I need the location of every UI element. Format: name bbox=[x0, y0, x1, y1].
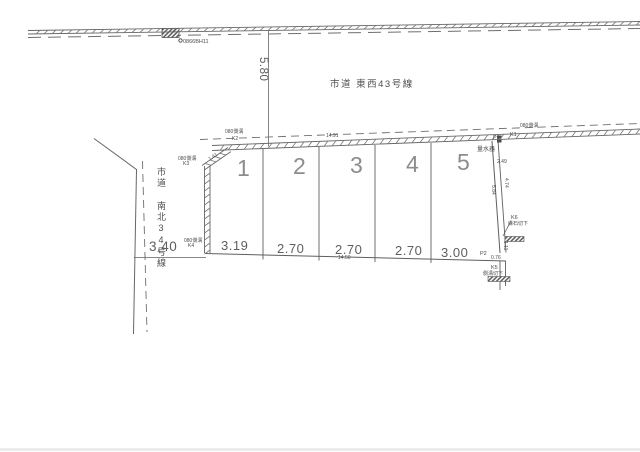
k6-note-label: 縁石切下 bbox=[508, 222, 528, 227]
k4-point-label: K4 bbox=[188, 244, 194, 249]
scan-edge-artifact bbox=[0, 448, 640, 451]
right-dimension-a: 5.84 bbox=[490, 185, 495, 195]
left-road-edge bbox=[94, 139, 137, 335]
parcel-block bbox=[134, 141, 506, 291]
k1-gutter-label: 080側溝 bbox=[520, 124, 538, 129]
left-road-centerline bbox=[143, 161, 148, 332]
k2-point-label: K2 bbox=[232, 137, 238, 142]
k2-gutter-label: 080側溝 bbox=[225, 130, 243, 135]
setback-dimension: 5.80 bbox=[257, 57, 269, 81]
p1-point-label: P1 bbox=[493, 136, 500, 142]
benchmark-label: 0866BH11 bbox=[183, 40, 209, 46]
parcel-width-1: 3.19 bbox=[221, 239, 248, 252]
parcel-number-4: 4 bbox=[406, 153, 419, 176]
survey-drawing-page: 0866BH11 市道 東西43号線 5.80 市道 南北34号線 3.40 1… bbox=[0, 0, 640, 452]
parcel-width-4: 2.70 bbox=[395, 244, 422, 257]
p2-offset-dimension: 0.76 bbox=[491, 256, 501, 261]
benchmark-point bbox=[179, 39, 182, 42]
k3-point-label: K3 bbox=[183, 162, 189, 167]
water-meter-label: 量水器 bbox=[477, 147, 495, 153]
k1-point-label: K1 bbox=[510, 133, 517, 139]
k5-gutter-block bbox=[488, 277, 510, 282]
top-road-name: 市道 東西43号線 bbox=[330, 80, 414, 90]
p2-point-label: P2 bbox=[480, 252, 487, 258]
survey-drawing-canvas bbox=[0, 0, 640, 452]
parcel-number-1: 1 bbox=[237, 157, 250, 180]
top-total-dimension: 14.91 bbox=[326, 134, 339, 139]
left-offset-dimension: 3.40 bbox=[149, 240, 177, 254]
right-dimension-c: 1.11 bbox=[502, 241, 507, 250]
parcel-width-2: 2.70 bbox=[277, 242, 304, 255]
bottom-total-dimension: 14.50 bbox=[338, 256, 351, 261]
parcel-number-2: 2 bbox=[293, 155, 306, 178]
parcel-number-5: 5 bbox=[457, 151, 470, 174]
railway-structure bbox=[162, 29, 182, 43]
parcel-number-3: 3 bbox=[350, 154, 363, 177]
right-dimension-b: 4.74 bbox=[503, 178, 508, 188]
right-top-dimension: 2.49 bbox=[497, 160, 507, 165]
k5-note-label: 側溝切下 bbox=[483, 272, 503, 277]
parcel-width-5: 3.00 bbox=[441, 246, 468, 259]
